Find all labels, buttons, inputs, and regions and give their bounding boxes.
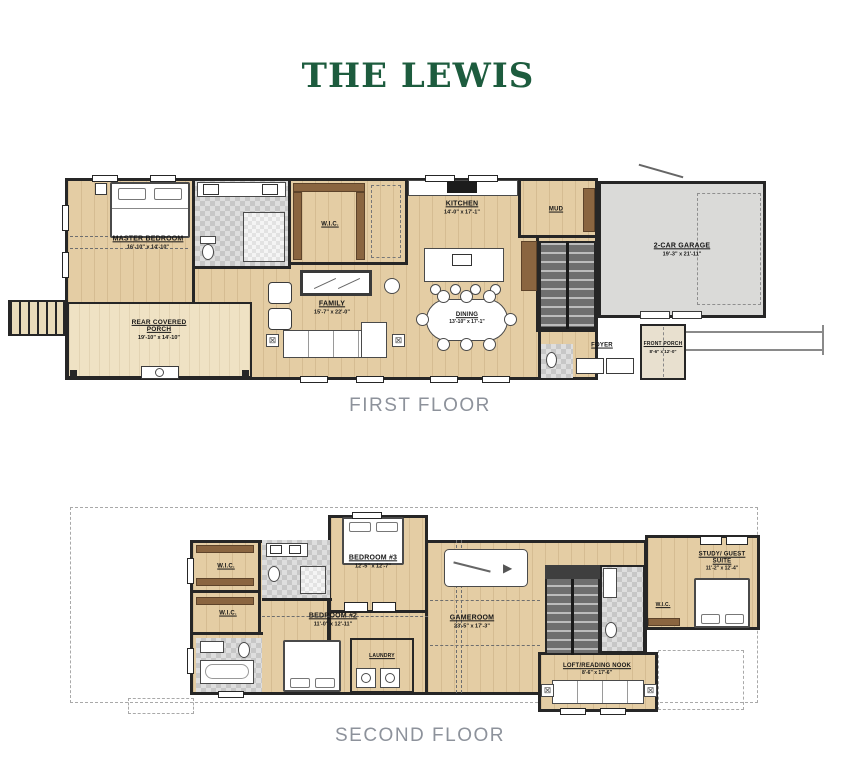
washer-icon [356,668,376,688]
toilet-icon [546,352,557,368]
toilet-icon [268,566,280,582]
ceiling-joist-line [430,645,540,646]
gameroom-label: GAMEROOM 23'-5" x 17'-3" [432,614,512,629]
pillow [725,614,744,624]
pillow [349,522,371,532]
garage-label: 2-CAR GARAGE 19'-3" x 21'-11" [637,242,727,257]
walkway-line [686,331,824,333]
wall-segment [288,178,291,266]
first-floor-caption: FIRST FLOOR [349,395,491,417]
armchair-icon [268,282,292,304]
window-marker [356,376,384,383]
window-marker [372,602,396,612]
foyer-closet [606,358,634,374]
wic3-label: W.I.C. [656,603,671,609]
toilet-icon [238,642,250,658]
bed-icon [283,640,341,692]
page-title: THE LEWIS [302,56,535,96]
wall-segment [192,266,291,269]
roof-outline-dashed [658,650,744,710]
porch-post [242,370,249,377]
bed-icon [110,182,190,238]
sink-icon [203,184,219,195]
pillow [315,678,335,688]
pillow [154,188,182,200]
nightstand [95,183,107,195]
mirror-glare-line [338,278,360,289]
chair-icon [437,338,450,351]
window-marker [726,536,748,545]
window-marker [482,376,510,383]
foyer-closet [576,358,604,374]
bedroom3-label: BEDROOM #3 12'-5" x 12'-7" [333,554,413,569]
closet-shelf [196,597,254,605]
chair-icon [437,290,450,303]
chair-icon [483,290,496,303]
blanket-line [112,208,188,209]
roof-outline-dashed [128,698,194,714]
walkway-line [686,349,824,351]
window-marker [700,536,722,545]
front-porch-label: FRONT PORCH 8'-6" x 12'-0" [642,342,684,354]
porch-post [70,370,77,377]
sofa-icon [552,680,644,704]
window-marker [300,376,328,383]
porch-steps [8,300,65,336]
vanity-counter [603,568,617,598]
garage-door-panel [640,311,670,319]
side-table-icon: ⊠ [541,684,554,697]
second-floor-caption: SECOND FLOOR [335,725,505,747]
closet-shelf [293,192,302,260]
stool-icon [450,284,461,295]
wall-segment [536,329,598,332]
wall-segment [258,540,261,632]
pool-table-icon: ▶ [444,549,528,587]
wic-label: W.I.C. [321,222,339,229]
wall-segment [262,598,332,601]
window-marker [430,376,458,383]
window-marker [218,691,244,698]
window-marker [187,558,194,584]
window-marker [344,602,368,612]
mirror-icon [300,270,372,296]
closet-shelf [196,545,254,553]
mirror-glare-line [314,278,336,289]
dryer-icon [380,668,400,688]
window-marker [187,648,194,674]
chair-icon [504,313,517,326]
window-marker [62,205,69,231]
grill-burner [155,368,164,377]
mud-bench [583,188,595,232]
ceiling-joist-line [430,600,540,601]
window-marker [150,175,176,182]
garage-door-swing-line [639,164,684,179]
side-table-icon: ⊠ [392,334,405,347]
sink-icon [262,184,278,195]
armchair-icon [268,308,292,330]
rear-porch-label: REAR COVERED PORCH 19'-10" x 14'-10" [119,319,199,341]
walkway-end-tick [822,325,824,355]
window-marker [352,512,382,519]
closet-shelf [356,192,365,260]
pillow [118,188,146,200]
family-label: FAMILY 15'-7" x 22'-0" [292,300,372,315]
range-icon [447,181,477,193]
understair-cabinet [521,241,537,291]
bathtub-icon [200,660,254,684]
laundry-label: LAUNDRY [369,654,395,660]
chair-icon [416,313,429,326]
kitchen-label: KITCHEN 14'-0" x 17'-1" [422,200,502,215]
window-marker [62,252,69,278]
sink-icon [270,545,282,554]
washer-drum [361,673,371,683]
closet-shelf [648,618,680,626]
wall-segment [193,590,261,593]
bed-icon [694,578,750,628]
pillow [290,678,310,688]
wall-segment [518,178,521,238]
window-marker [600,708,626,715]
closet-rod-outline [371,185,401,258]
bedroom2-label: BEDROOM #2 11'-0" x 12'-11" [288,612,378,627]
master-bedroom-label: MASTER BEDROOM 16'-10" x 14'-10" [93,235,203,250]
loft-label: LOFT/READING NOOK 8'-6" x 17'-6" [542,663,652,677]
shower-icon [243,212,285,262]
stair-rail [566,241,569,329]
toilet-icon [202,244,214,260]
wall-segment [518,235,598,238]
stair-landing [545,565,600,579]
side-table-icon: ⊠ [644,684,657,697]
wic2-label: W.I.C. [219,611,237,618]
floorplan-sheet: THE LEWIS 2-CAR GARAGE 19'-3" x 21'-11" … [0,0,852,768]
study-label: STUDY/ GUEST SUITE 11'-2" x 12'-4" [697,552,747,573]
tub-basin [205,664,249,679]
shower-icon [300,566,326,594]
window-marker [92,175,118,182]
garage-door-panel [672,311,702,319]
closet-shelf [196,578,254,586]
island-sink-icon [452,254,472,266]
wall-segment [193,632,263,635]
side-table-round [384,278,400,294]
closet-shelf [293,183,365,192]
wic1-label: W.I.C. [217,564,235,571]
vanity-counter [200,641,224,653]
pool-rack-triangle: ▶ [503,561,512,575]
pillow [376,522,398,532]
pillow [701,614,720,624]
chair-icon [460,338,473,351]
mud-label: MUD [549,207,563,214]
dining-label: DINING 13'-10" x 17'-1" [432,312,502,326]
side-table-icon: ⊠ [266,334,279,347]
chair-icon [483,338,496,351]
wall-segment [288,262,408,265]
sectional-chaise [361,322,387,358]
foyer-label: FOYER [591,343,613,350]
window-marker [560,708,586,715]
dryer-drum [385,673,395,683]
sink-icon [289,545,301,554]
wall-segment [538,332,541,380]
pool-cue [453,561,490,572]
chair-icon [460,290,473,303]
toilet-icon [605,622,617,638]
